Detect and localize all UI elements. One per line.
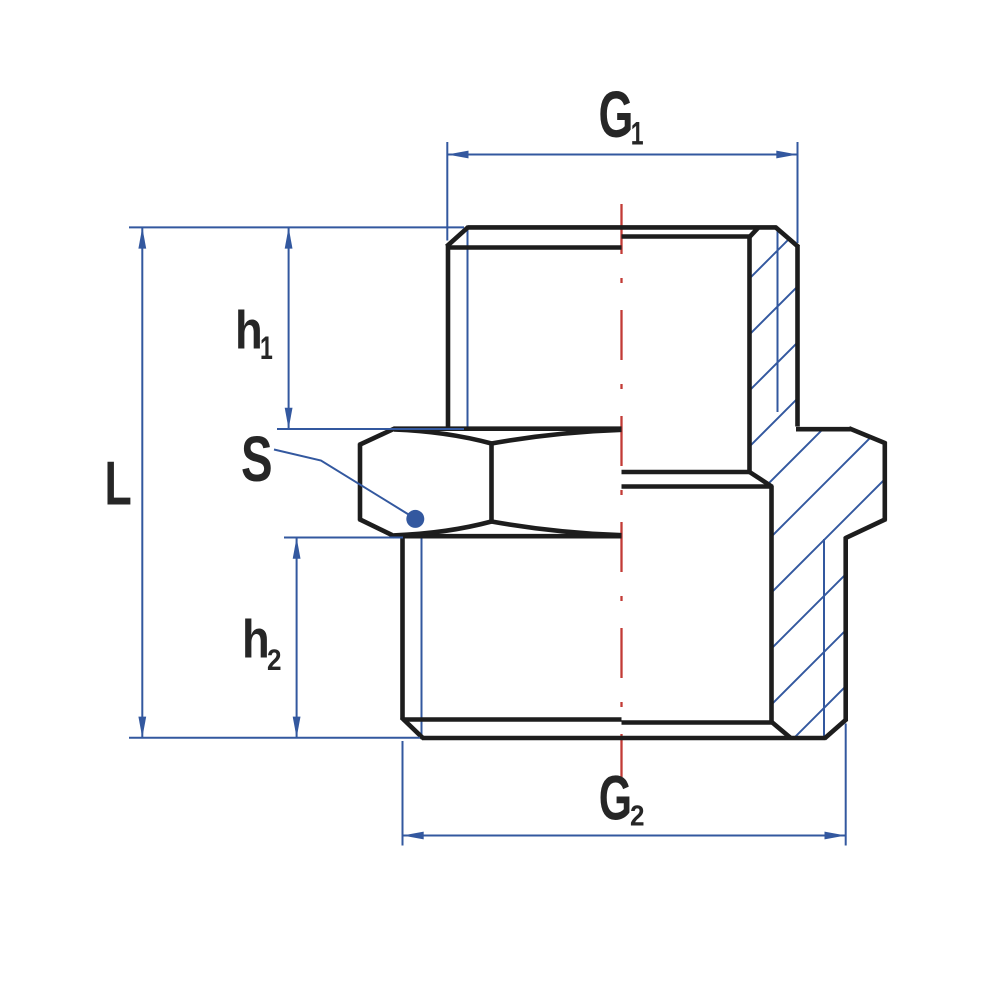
- svg-text:S: S: [241, 423, 273, 495]
- svg-text:L: L: [105, 449, 132, 518]
- svg-text:G: G: [599, 763, 632, 833]
- svg-text:2: 2: [267, 643, 282, 676]
- svg-text:2: 2: [630, 799, 645, 832]
- svg-text:h: h: [235, 300, 263, 361]
- svg-text:1: 1: [631, 116, 644, 152]
- svg-text:G: G: [599, 77, 634, 151]
- svg-text:h: h: [242, 609, 270, 670]
- svg-text:1: 1: [260, 330, 273, 366]
